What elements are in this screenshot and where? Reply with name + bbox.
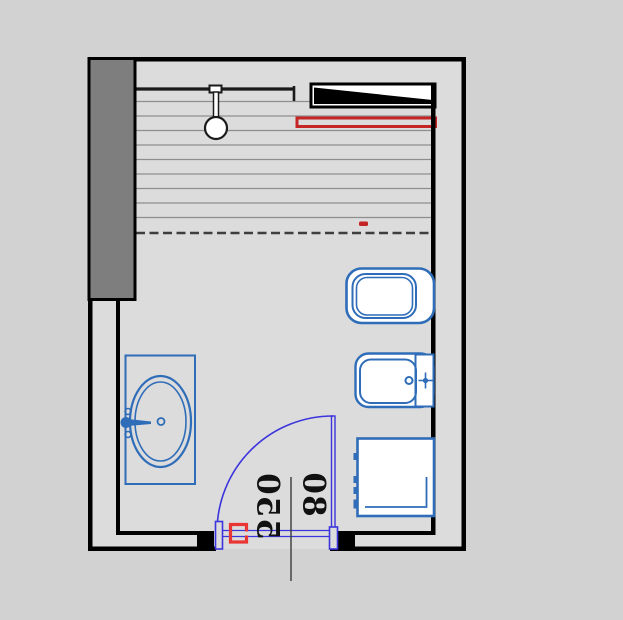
wall-shelf-symbol[interactable] bbox=[311, 84, 435, 107]
toilet-symbol[interactable] bbox=[347, 269, 435, 324]
floor-plan-screenshot: 550 80 bbox=[0, 0, 623, 620]
wall-left-inner bbox=[116, 300, 120, 535]
wall-end-left-of-door bbox=[197, 531, 214, 548]
door-jamb-left bbox=[216, 522, 223, 550]
wall-end-right-of-door bbox=[338, 531, 355, 548]
bidet-symbol[interactable] bbox=[356, 354, 434, 408]
dimension-label-550[interactable]: 550 bbox=[250, 472, 286, 540]
wall-right-outer bbox=[462, 57, 467, 551]
washing-machine-body bbox=[358, 439, 435, 517]
pillar[interactable] bbox=[89, 59, 135, 300]
washing-machine-symbol[interactable] bbox=[354, 439, 435, 517]
shower-head-icon bbox=[205, 117, 227, 139]
shower-drain-marker bbox=[359, 222, 368, 227]
wall-top bbox=[88, 57, 466, 62]
door-jamb-right bbox=[330, 527, 338, 549]
shower-head-arm bbox=[214, 92, 219, 118]
wall-bottom-outer-left bbox=[88, 547, 216, 552]
dimension-label-80[interactable]: 80 bbox=[296, 471, 332, 516]
floor-plan-canvas: 550 80 bbox=[0, 0, 623, 620]
